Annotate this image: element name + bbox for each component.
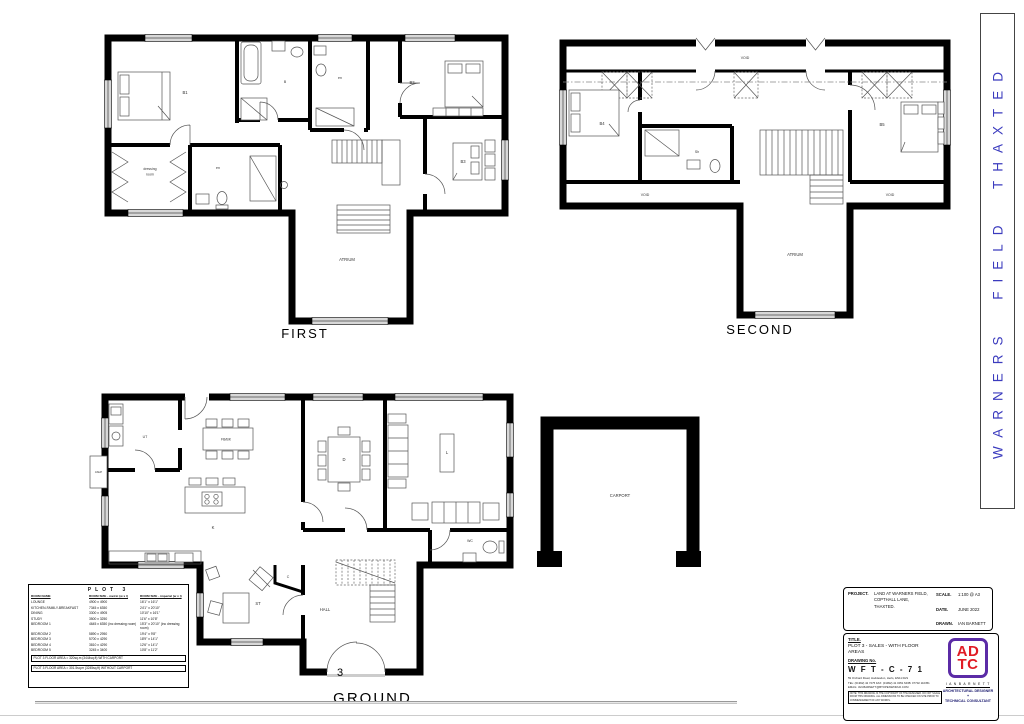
- project-label: PROJECT.: [848, 591, 874, 627]
- schedule-cell: 3500 x 3250: [89, 617, 139, 621]
- project-info-box: PROJECT. LAND AT WARNERS FIELD, COPTHALL…: [843, 587, 993, 631]
- drawing-title-line: AREAS: [848, 650, 942, 656]
- schedule-cell: BEDROOM 1: [31, 622, 88, 630]
- caption-second: SECOND: [715, 322, 805, 337]
- schedule-cell: BEDROOM 4: [31, 643, 88, 647]
- designer-name: I A N B A R N E T T: [946, 680, 990, 688]
- schedule-cell: 15'3" x 20'10" (inc dressing room): [140, 622, 189, 630]
- schedule-cell: 3300 x 4905: [89, 611, 139, 615]
- plot-number-label: 3: [330, 667, 350, 679]
- room-label-b3: B3: [460, 159, 466, 164]
- schedule-cell: 3245 x 3400: [89, 648, 139, 652]
- schedule-cell: 18'9" x 14'1": [140, 637, 189, 641]
- second-outer-walls: [563, 43, 947, 315]
- date-label: DATE.: [936, 607, 958, 612]
- designer-tagline: TECHNICAL CONSULTANT: [942, 699, 994, 704]
- caption-ground: GROUND: [325, 690, 420, 707]
- drawing-no-label: DRAWING No.: [848, 658, 942, 663]
- carport-walls: [547, 423, 693, 555]
- drawn-label: DRAWN.: [936, 621, 958, 626]
- schedule-cell: 5700 x 4290: [89, 637, 139, 641]
- void-label-top: VOID: [741, 56, 750, 60]
- ground-underline: [35, 701, 737, 704]
- schedule-cell: BEDROOM 5: [31, 648, 88, 652]
- void-label-left: VOID: [641, 193, 650, 197]
- drawing-number: W F T - C - 7 1: [848, 665, 942, 674]
- bed-icon: [901, 102, 944, 152]
- room-label-dressing-2: room: [146, 173, 154, 177]
- schedule-cell: KITCHEN-FAMILY-BREAKFAST: [31, 606, 88, 610]
- schedule-cell: 4900 x 4900: [89, 600, 139, 604]
- void-label-right: VOID: [886, 193, 895, 197]
- schedule-cell: 19'4" x 9'8": [140, 632, 189, 636]
- drawing-sheet: B1 dressing room en B en B2 B3 ATRIUM: [0, 0, 1024, 724]
- schedule-cell: LOUNGE: [31, 600, 88, 604]
- designer-tagline: ARCHITECTURAL DESIGNER +: [942, 689, 994, 699]
- title-label: TITLE.: [848, 637, 942, 642]
- floor-area-note-with-carport: PLOT 3 FLOOR AREA = 320sq.m (3444sq.ft) …: [31, 655, 186, 663]
- room-label-wc: WC: [467, 539, 473, 543]
- date-value: JUNE 2022: [958, 607, 979, 612]
- bed-icon: [569, 90, 619, 136]
- room-label-b4: B4: [599, 121, 605, 126]
- adtc-logo: AD TC: [948, 638, 988, 678]
- schedule-cell: 10'10" x 16'1": [140, 611, 189, 615]
- room-label-b1: B1: [182, 90, 188, 95]
- schedule-cell: BEDROOM 2: [31, 632, 88, 636]
- schedule-cell: 5890 x 2950: [89, 632, 139, 636]
- room-label-k: K: [212, 525, 215, 530]
- schedule-cell: STUDY: [31, 617, 88, 621]
- schedule-cell: DINING: [31, 611, 88, 615]
- schedule-title: PLOT 3: [31, 587, 186, 593]
- room-label-dressing-1: dressing: [143, 167, 156, 171]
- room-schedule: PLOT 3 ROOM NAME ROOM SIZE - metric (w x…: [28, 584, 189, 688]
- schedule-table: ROOM NAME ROOM SIZE - metric (w x l) ROO…: [31, 595, 186, 652]
- room-label-atrium: ATRIUM: [787, 252, 803, 257]
- schedule-cell: BEDROOM 3: [31, 637, 88, 641]
- schedule-cell: 3810 x 4290: [89, 643, 139, 647]
- first-floor-plan: B1 dressing room en B en B2 B3 ATRIUM: [100, 28, 510, 328]
- drawn-value: IAN BARNETT: [958, 621, 986, 626]
- carport-plan: CARPORT: [535, 405, 705, 575]
- room-label-hall: HALL: [320, 607, 331, 612]
- schedule-cell: 7345 x 6350: [89, 606, 139, 610]
- floor-area-note-without-carport: PLOT 3 FLOOR AREA = 301.5sq.m (3245sq.ft…: [31, 665, 186, 673]
- carport-label: CARPORT: [610, 493, 631, 498]
- site-name-text: WARNERS FIELD THAXTED: [990, 63, 1005, 459]
- bed-icon: [453, 140, 495, 180]
- room-label-st: ST: [255, 601, 261, 606]
- logo-bottom-letters: TC: [958, 658, 979, 671]
- schedule-cell: 12'6" x 14'1": [140, 643, 189, 647]
- room-label-b5: B5: [879, 122, 885, 127]
- schedule-cell: 24'1" x 20'10": [140, 606, 189, 610]
- room-label-b2: B2: [409, 80, 415, 85]
- room-label-en-right: en: [338, 76, 342, 80]
- schedule-header: ROOM SIZE - imperial (w x l): [140, 595, 189, 599]
- schedule-header: ROOM NAME: [31, 595, 88, 599]
- scale-value: 1:100 @ A3: [958, 592, 980, 597]
- schedule-cell: 4645 x 6350 (inc dressing room): [89, 622, 139, 630]
- schedule-cell: 10'8" x 11'2": [140, 648, 189, 652]
- room-label-sh: Sh: [695, 150, 699, 154]
- room-label-fbbk: FB/BK: [221, 438, 232, 442]
- title-block: TITLE. PLOT 3 - SALES - WITH FLOOR AREAS…: [843, 633, 999, 721]
- bed-icon: [118, 72, 170, 120]
- caption-first: FIRST: [260, 326, 350, 341]
- room-label-atrium: ATRIUM: [339, 257, 355, 262]
- scale-label: SCALE.: [936, 592, 958, 597]
- room-label-d: D: [342, 457, 345, 462]
- disclaimer-note: NOTE: THIS DRAWING IS THE COPYRIGHT OF T…: [848, 691, 942, 704]
- schedule-cell: 11'6" x 10'8": [140, 617, 189, 621]
- schedule-header: ROOM SIZE - metric (w x l): [89, 595, 139, 599]
- second-floor-plan: B4 Sh B5 VOID VOID VOID ATRIUM: [555, 30, 955, 322]
- room-label-en-left: en: [216, 166, 220, 170]
- site-name-banner: WARNERS FIELD THAXTED: [980, 13, 1015, 509]
- label-ashp: ASHP: [95, 470, 103, 474]
- schedule-cell: 16'1" x 16'1": [140, 600, 189, 604]
- email-line: EMAIL: IAN.BARNETT@BTOPENWORLD.COM: [848, 685, 942, 689]
- project-line: THAXTED.: [874, 604, 928, 610]
